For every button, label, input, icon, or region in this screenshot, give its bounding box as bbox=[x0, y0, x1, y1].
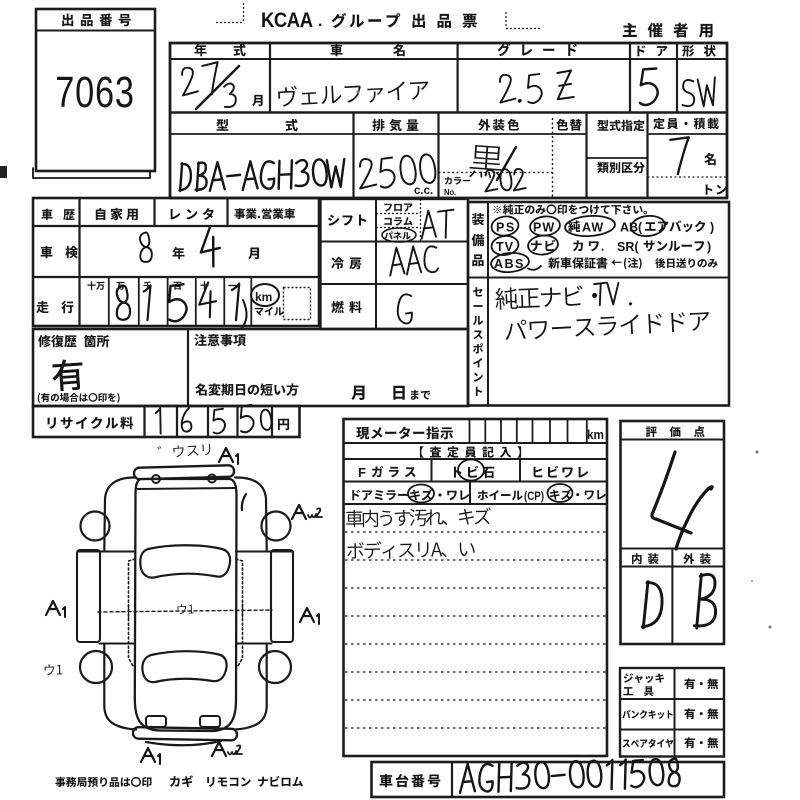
svg-text:AW: AW bbox=[582, 221, 604, 235]
svg-text:c.c.: c.c. bbox=[414, 185, 433, 197]
svg-text:KCAA: KCAA bbox=[261, 9, 313, 32]
svg-text:km: km bbox=[255, 290, 272, 304]
svg-text:7063: 7063 bbox=[55, 68, 134, 117]
svg-text:SR(: SR( bbox=[617, 240, 639, 254]
svg-text:TV: TV bbox=[496, 240, 514, 254]
svg-text:): ) bbox=[707, 240, 711, 254]
svg-text:F: F bbox=[358, 465, 366, 480]
svg-text:.: . bbox=[601, 240, 604, 254]
svg-text:.: . bbox=[318, 13, 322, 30]
svg-text:PW: PW bbox=[533, 221, 555, 235]
svg-text:No.: No. bbox=[444, 188, 456, 197]
svg-text:km: km bbox=[587, 427, 604, 442]
svg-text:(CP): (CP) bbox=[524, 490, 544, 503]
svg-text:): ) bbox=[710, 221, 714, 235]
